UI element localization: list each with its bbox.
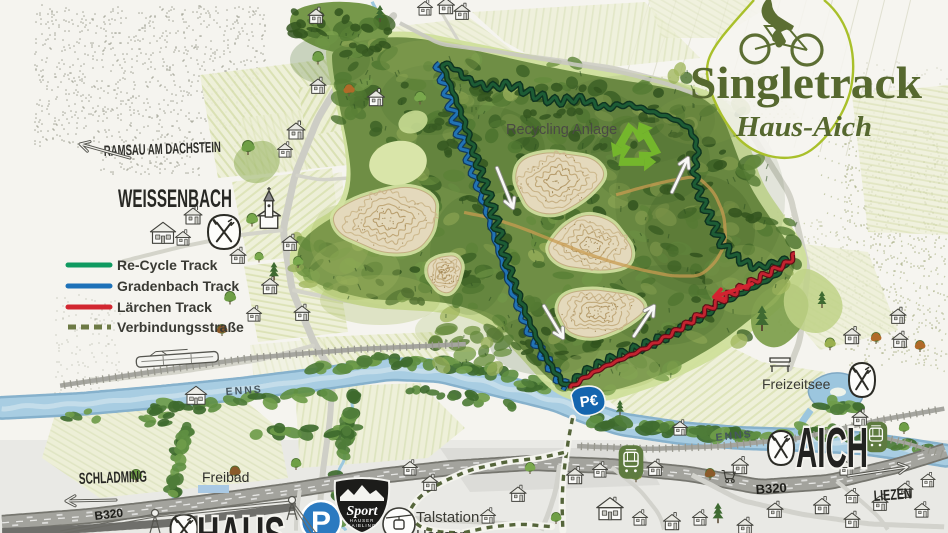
- svg-text:P: P: [311, 506, 331, 533]
- svg-text:Verbindungsstraße: Verbindungsstraße: [117, 319, 244, 335]
- svg-text:SCHLADMING: SCHLADMING: [79, 469, 148, 488]
- svg-text:Re-Cycle Track: Re-Cycle Track: [117, 257, 218, 273]
- svg-text:Gradenbach Track: Gradenbach Track: [117, 278, 239, 294]
- svg-text:WEISSENBACH: WEISSENBACH: [118, 185, 232, 213]
- svg-text:Talstation: Talstation: [416, 509, 479, 526]
- svg-text:Freizeitsee: Freizeitsee: [762, 376, 831, 392]
- svg-text:P€: P€: [579, 392, 600, 411]
- svg-text:Freibad: Freibad: [202, 469, 249, 485]
- svg-text:Singletrack: Singletrack: [690, 57, 922, 108]
- svg-text:Haus-Aich: Haus-Aich: [735, 111, 872, 143]
- svg-text:Sport: Sport: [346, 504, 378, 519]
- svg-text:HAUS: HAUS: [197, 507, 285, 533]
- svg-text:B320: B320: [755, 480, 787, 497]
- svg-text:KAIBLING: KAIBLING: [348, 523, 377, 528]
- svg-text:Lärchen Track: Lärchen Track: [117, 299, 212, 315]
- svg-text:Recycling Anlage: Recycling Anlage: [506, 122, 617, 138]
- svg-text:Hauser: Hauser: [416, 527, 464, 533]
- svg-text:AICH: AICH: [796, 416, 868, 480]
- svg-text:LIEZEN: LIEZEN: [873, 485, 912, 505]
